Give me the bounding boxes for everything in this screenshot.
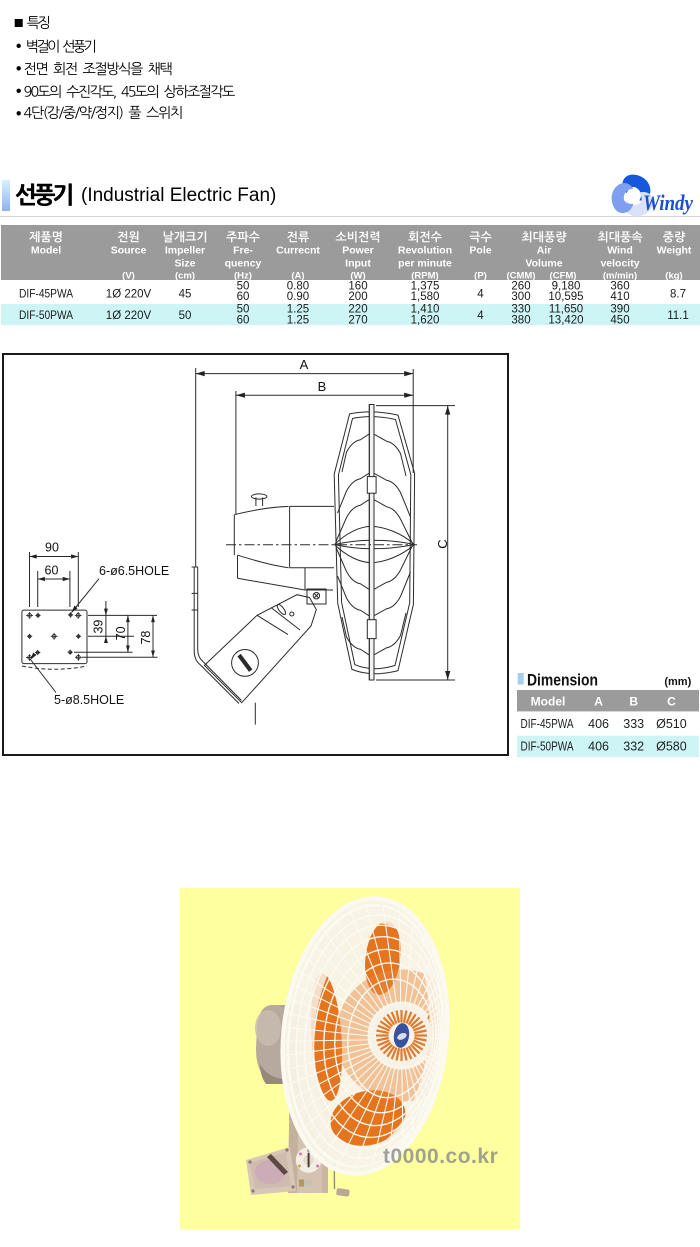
- svg-text:39: 39: [91, 620, 105, 634]
- svg-text:DIF-45PWA: DIF-45PWA: [521, 717, 575, 731]
- svg-text:78: 78: [139, 631, 153, 645]
- svg-text:C: C: [667, 695, 676, 709]
- svg-text:Ø580: Ø580: [656, 740, 687, 754]
- svg-text:90: 90: [45, 541, 59, 555]
- svg-text:(mm): (mm): [664, 676, 691, 688]
- svg-text:333: 333: [623, 717, 644, 731]
- svg-text:A: A: [300, 357, 309, 372]
- svg-text:B: B: [318, 379, 327, 394]
- svg-text:332: 332: [623, 740, 644, 754]
- svg-text:70: 70: [114, 626, 128, 640]
- svg-text:C: C: [435, 539, 450, 548]
- svg-text:406: 406: [588, 717, 609, 731]
- svg-text:Ø510: Ø510: [656, 717, 687, 731]
- svg-text:60: 60: [45, 564, 59, 578]
- svg-text:Dimension: Dimension: [527, 672, 598, 690]
- svg-text:t0000.co.kr: t0000.co.kr: [383, 1145, 498, 1168]
- svg-text:6-ø6.5HOLE: 6-ø6.5HOLE: [99, 564, 169, 578]
- svg-text:Model: Model: [531, 695, 566, 709]
- svg-text:B: B: [629, 695, 638, 709]
- svg-text:A: A: [594, 695, 603, 709]
- svg-text:406: 406: [588, 740, 609, 754]
- svg-text:DIF-50PWA: DIF-50PWA: [521, 740, 575, 754]
